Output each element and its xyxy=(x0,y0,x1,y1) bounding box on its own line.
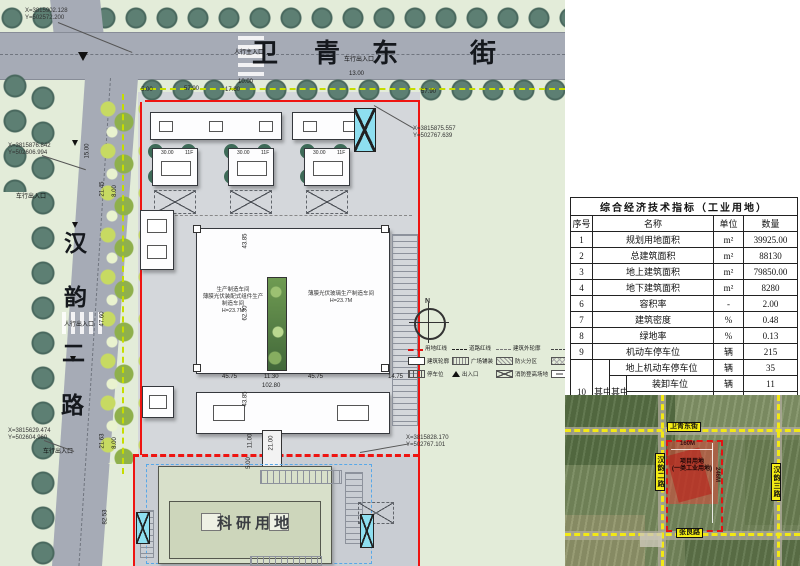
entrance-label: 人行出入口 xyxy=(64,322,94,328)
dimension-label: 15.00 xyxy=(85,143,91,158)
dimension-label: 82.53 xyxy=(103,509,109,524)
cell-name: 规划用地面积 xyxy=(593,232,714,248)
coordinate-label: X=3815902.128 Y=502572.200 xyxy=(25,8,68,22)
main-workshop-building: 生产制造车间 薄膜光伏装配式组件生产制造车间 H=23.7M 薄膜光伏玻璃生产制… xyxy=(196,228,390,374)
room-box xyxy=(147,245,167,259)
cell-qty: 0.48 xyxy=(744,312,798,328)
header-name: 名称 xyxy=(593,216,714,232)
aux-building-south xyxy=(142,386,174,418)
tower-core xyxy=(161,161,191,176)
table-row: 8绿地率%0.13 xyxy=(571,328,798,344)
site-label: 项目用地 (一类工业用地) xyxy=(667,459,717,473)
cell-no: 7 xyxy=(571,312,593,328)
west-street-char: 汉 xyxy=(64,232,87,255)
tower-building-2: 30.00 11F xyxy=(228,148,274,186)
dim-arrow-icon xyxy=(72,222,78,228)
fire-pad xyxy=(306,190,348,214)
legend-symbol-parking-icon xyxy=(408,370,425,378)
tower-building-3: 30.00 11F xyxy=(304,148,350,186)
workshop-left-line2: 薄膜光伏装配式组件生产制造车间 xyxy=(201,294,265,308)
legend-item: 地库轮廓线 xyxy=(551,344,565,352)
cell-unit: % xyxy=(714,312,744,328)
dimension-label: 57.90 xyxy=(184,86,199,92)
dimension-label: 13.00 xyxy=(349,71,364,77)
legend-label: 停车位 xyxy=(427,370,444,378)
cell-name: 装卸车位 xyxy=(627,376,714,392)
west-street-char: 二 xyxy=(62,342,85,365)
cell-qty: 35 xyxy=(744,360,798,376)
dimension-label: 5.00 xyxy=(141,87,153,93)
column-square xyxy=(381,225,389,233)
cell-qty: 88130 xyxy=(744,248,798,264)
dimension-label: 5.00 xyxy=(246,457,252,469)
legend-symbol-loading-icon xyxy=(551,370,565,378)
compass-line-v xyxy=(428,303,429,343)
table-row: 2总建筑面积m²88130 xyxy=(571,248,798,264)
dim-line-w xyxy=(671,449,713,450)
site-label-line1: 项目用地 xyxy=(667,459,717,466)
cell-no: 3 xyxy=(571,264,593,280)
cell-name: 机动车停车位 xyxy=(593,344,714,360)
coord-x: X=3815902.128 xyxy=(25,8,68,15)
green-line-north xyxy=(140,88,565,90)
cell-name: 绿地率 xyxy=(593,328,714,344)
column-square xyxy=(193,225,201,233)
cell-name: 总建筑面积 xyxy=(593,248,714,264)
legend-item: 装卸车位 xyxy=(551,370,565,378)
dimension-label: 8.00 xyxy=(112,185,118,197)
header-no: 序号 xyxy=(571,216,593,232)
tree-column-corner-icon xyxy=(2,72,28,192)
dim-arrow-icon xyxy=(72,140,78,146)
workshop-right-line2: H=23.7M xyxy=(299,298,383,305)
cell-no: 2 xyxy=(571,248,593,264)
legend-symbol-hatch-icon xyxy=(452,357,469,365)
legend-symbol-thin-dash-icon xyxy=(551,349,565,350)
legend-label: 出入口 xyxy=(462,370,479,378)
room-box xyxy=(159,121,173,132)
site-plan: 30.00 11F 30.00 11F 30.00 11F xyxy=(0,0,565,566)
parking-row xyxy=(250,556,322,566)
cell-unit: % xyxy=(714,328,744,344)
cell-no: 6 xyxy=(571,296,593,312)
sat-road-label-top: 卫青东街 xyxy=(667,422,701,432)
north-street-char: 东 xyxy=(372,40,398,66)
tower-core xyxy=(313,161,343,176)
dimension-label: 45.75 xyxy=(222,374,237,380)
tower-dim-label: 30.00 xyxy=(161,151,174,156)
aux-building-north xyxy=(140,210,174,270)
cell-no: 9 xyxy=(571,344,593,360)
cell-name: 容积率 xyxy=(593,296,714,312)
cell-qty: 2.00 xyxy=(744,296,798,312)
room-box xyxy=(147,219,167,233)
red-line-north xyxy=(145,100,419,102)
gatehouse-building xyxy=(150,112,282,140)
cell-name: 地上建筑面积 xyxy=(593,264,714,280)
tower-floors-label: 11F xyxy=(185,151,193,156)
coord-x: X=3815875.557 xyxy=(413,126,456,133)
table-title: 综合经济技术指标（工业用地） xyxy=(571,198,798,216)
cell-unit: 辆 xyxy=(714,344,744,360)
north-street-char: 青 xyxy=(314,40,340,66)
legend-item: 消防登高场地 xyxy=(496,370,548,378)
cell-unit: 辆 xyxy=(714,376,744,392)
dimension-label: 57.90 xyxy=(421,89,436,95)
legend-item: 用地红线 xyxy=(408,344,449,352)
legend-symbol-red-dash-icon xyxy=(408,349,423,351)
table-row: 3地上建筑面积m²79850.00 xyxy=(571,264,798,280)
legend-symbol-firepad-icon xyxy=(496,370,513,378)
cell-qty: 79850.00 xyxy=(744,264,798,280)
road-arrow-icon xyxy=(78,52,88,61)
legend-label: 用地红线 xyxy=(425,344,447,352)
atrium-garden-icon xyxy=(267,277,287,371)
site-boundary-dash xyxy=(666,440,723,532)
legend-symbol-rect-icon xyxy=(408,357,425,365)
research-parcel-label: 科研用地 xyxy=(195,512,315,533)
cell-qty: 39925.00 xyxy=(744,232,798,248)
fire-pad xyxy=(230,190,272,214)
room-box xyxy=(209,121,223,132)
dimension-label: 102.80 xyxy=(262,383,280,389)
entrance-label: 车行出入口 xyxy=(344,57,374,63)
header-unit: 单位 xyxy=(714,216,744,232)
compass-line-h xyxy=(409,322,449,323)
garage-ramp-icon xyxy=(360,514,374,548)
cell-no: 1 xyxy=(571,232,593,248)
service-road-dash xyxy=(150,215,412,216)
legend-label: 消防登高场地 xyxy=(515,370,548,378)
dimension-label: 62.30 xyxy=(243,305,249,320)
legend-item: 建筑外轮廓 xyxy=(496,344,548,352)
legend-item: 绿化种植 xyxy=(551,357,565,365)
room-box xyxy=(149,395,167,409)
room-box xyxy=(213,405,245,421)
legend-label: 道路红线 xyxy=(469,344,491,352)
cell-no: 4 xyxy=(571,280,593,296)
dimension-label: 11.00 xyxy=(247,434,253,449)
workshop-right-line1: 薄膜光伏玻璃生产制造车间 xyxy=(299,291,383,298)
legend-item: 道路红线 xyxy=(452,344,493,352)
red-line-southwest xyxy=(133,455,135,566)
legend-item: 建筑轮廓 xyxy=(408,357,449,365)
workshop-left-line3: H=23.7M xyxy=(201,308,265,315)
legend-symbol-diagonal-hatch-icon xyxy=(496,357,513,365)
page: 30.00 11F 30.00 11F 30.00 11F xyxy=(0,0,800,566)
coordinate-label: X=3815875.557 Y=502767.639 xyxy=(413,126,456,140)
dim-line-h xyxy=(712,443,713,523)
legend-label: 建筑轮廓 xyxy=(427,357,449,365)
legend-label: 广场铺装 xyxy=(471,357,493,365)
room-box xyxy=(337,405,369,421)
legend-symbol-entrance-icon xyxy=(452,371,460,377)
cell-name: 建筑密度 xyxy=(593,312,714,328)
west-street-char: 路 xyxy=(61,394,84,417)
village-patch xyxy=(640,533,662,547)
dimension-label: 43.85 xyxy=(243,233,249,248)
tower-floors-label: 11F xyxy=(337,151,345,156)
legend-label: 防火分区 xyxy=(515,357,537,365)
table-row: 9机动车停车位辆215 xyxy=(571,344,798,360)
tower-floors-label: 11F xyxy=(261,151,269,156)
cell-unit: - xyxy=(714,296,744,312)
workshop-right-label: 薄膜光伏玻璃生产制造车间 H=23.7M xyxy=(299,291,383,305)
coord-x: X=3815629.474 xyxy=(8,428,51,435)
entrance-label: 车行出入口 xyxy=(16,194,46,200)
sat-road-label-bottom: 张良路 xyxy=(676,528,703,538)
table-row: 7建筑密度%0.48 xyxy=(571,312,798,328)
table-row: 4地下建筑面积m²8280 xyxy=(571,280,798,296)
dimension-label: 21.00 xyxy=(269,435,275,450)
dimension-label: 11.30 xyxy=(264,374,279,380)
dimension-label: 10.00 xyxy=(238,79,253,85)
legend-item: 出入口 xyxy=(452,370,493,378)
entrance-label: 人行主入口 xyxy=(234,50,264,56)
cell-unit: m² xyxy=(714,232,744,248)
garage-ramp-icon xyxy=(354,108,376,152)
tower-core xyxy=(237,161,267,176)
header-qty: 数量 xyxy=(744,216,798,232)
cell-qty: 11 xyxy=(744,376,798,392)
coordinate-label: X=3815828.170 Y=502767.101 xyxy=(406,435,449,449)
dimension-label: 8.00 xyxy=(112,437,118,449)
tower-dim-label: 30.00 xyxy=(237,151,250,156)
cell-name: 地上机动车停车位 xyxy=(610,360,714,376)
cell-unit: 辆 xyxy=(714,360,744,376)
site-width-label: 160M xyxy=(680,441,695,447)
cell-unit: m² xyxy=(714,264,744,280)
cell-name: 地下建筑面积 xyxy=(593,280,714,296)
column-square xyxy=(381,364,389,372)
cell-unit: m² xyxy=(714,248,744,264)
table-row: 1规划用地面积m²39925.00 xyxy=(571,232,798,248)
legend-symbol-cross-hatch-icon xyxy=(551,357,565,365)
cell-qty: 8280 xyxy=(744,280,798,296)
west-street-char: 韵 xyxy=(64,286,87,309)
cell-qty: 215 xyxy=(744,344,798,360)
table-row: 10 其中 地上机动车停车位 辆 35 xyxy=(571,360,798,376)
cell-qty: 0.13 xyxy=(744,328,798,344)
dimension-label: 21.63 xyxy=(100,433,106,448)
workshop-south-wing xyxy=(196,392,390,434)
dimension-label: 21.45 xyxy=(100,181,106,196)
dimension-label: 17.80 xyxy=(225,87,240,93)
compass-circle xyxy=(414,308,446,340)
dimension-label: 14.75 xyxy=(388,374,403,380)
legend-symbol-black-dash-icon xyxy=(452,349,467,350)
legend-item: 防火分区 xyxy=(496,357,548,365)
green-line-west xyxy=(122,94,124,474)
satellite-map: 160M 246M 项目用地 (一类工业用地) 卫青东街 张良路 汉韵二路 汉韵… xyxy=(565,395,800,566)
room-box xyxy=(303,121,317,132)
legend-label: 建筑外轮廓 xyxy=(513,344,541,352)
coord-y: Y=502572.200 xyxy=(25,15,68,22)
tower-dim-label: 30.00 xyxy=(313,151,326,156)
north-compass-icon: N xyxy=(412,300,446,340)
site-label-line2: (一类工业用地) xyxy=(667,466,717,473)
legend-item: 停车位 xyxy=(408,370,449,378)
coord-y: Y=502767.101 xyxy=(406,442,449,449)
cell-no: 8 xyxy=(571,328,593,344)
table-row: 6容积率-2.00 xyxy=(571,296,798,312)
workshop-left-line1: 生产制造车间 xyxy=(201,287,265,294)
legend: 用地红线 道路红线 建筑外轮廓 地库轮廓线 建筑轮廓 广场铺装 防火分区 绿化种… xyxy=(408,344,562,378)
legend-symbol-gray-dash-icon xyxy=(496,349,511,350)
legend-item: 广场铺装 xyxy=(452,357,493,365)
workshop-left-label: 生产制造车间 薄膜光伏装配式组件生产制造车间 H=23.7M xyxy=(201,287,265,315)
dimension-label: 45.75 xyxy=(308,374,323,380)
sat-road-label-left: 汉韵二路 xyxy=(655,453,665,491)
coord-x: X=3815828.170 xyxy=(406,435,449,442)
north-street-char: 街 xyxy=(470,40,496,66)
coord-y: Y=502767.639 xyxy=(413,133,456,140)
dimension-label: 43.85 xyxy=(243,391,249,406)
coord-x: X=3815876.842 xyxy=(8,143,51,150)
sat-road-label-right: 汉韵三路 xyxy=(771,463,781,501)
bush-strip-icon xyxy=(98,100,140,464)
room-box xyxy=(259,121,273,132)
garage-ramp-icon xyxy=(136,512,150,544)
column-square xyxy=(193,364,201,372)
cell-unit: m² xyxy=(714,280,744,296)
tower-building-1: 30.00 11F xyxy=(152,148,198,186)
parking-row xyxy=(260,470,342,484)
dimension-label: 47.60 xyxy=(100,311,106,326)
